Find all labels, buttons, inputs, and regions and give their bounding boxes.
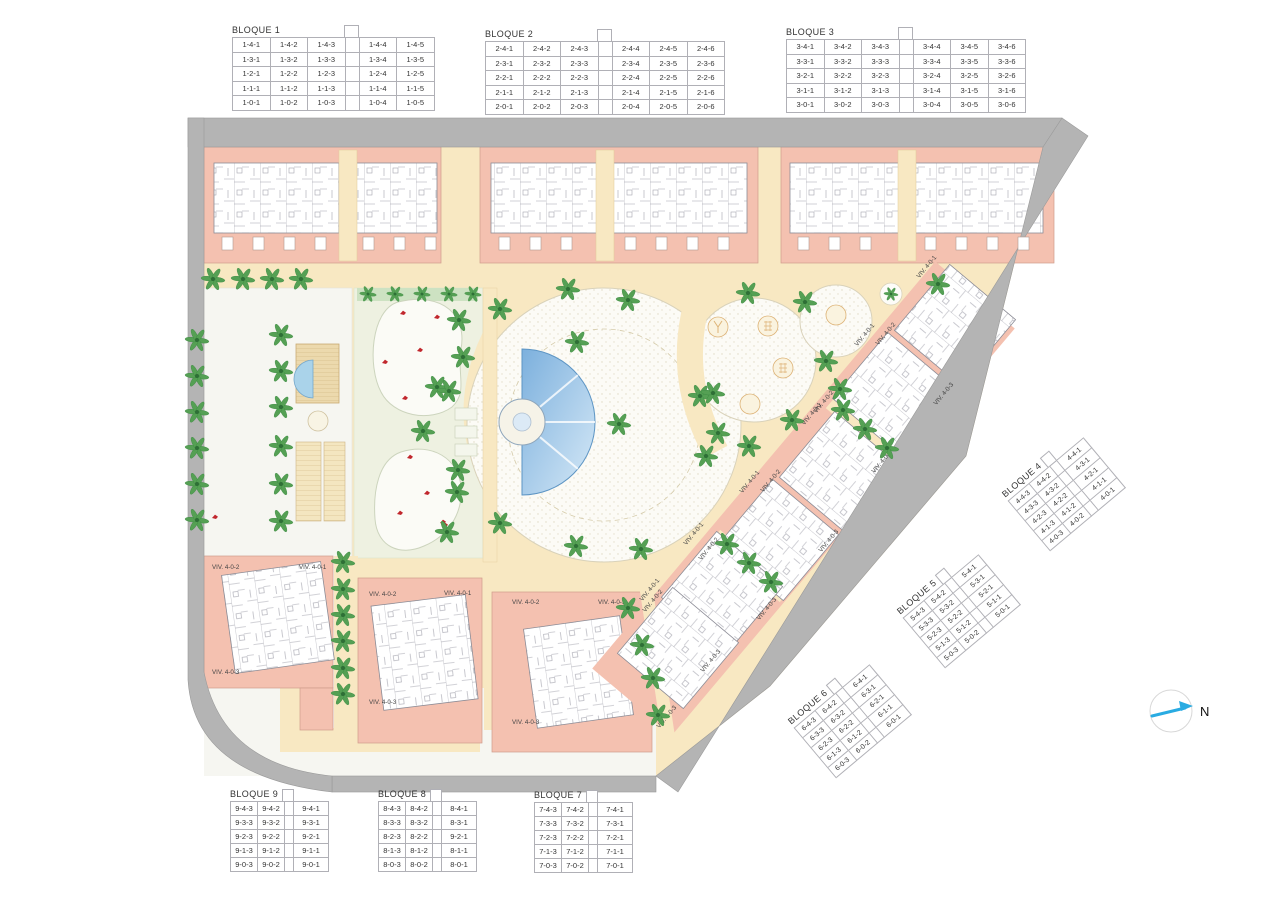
viv-label: VIV. 4-0-1 (444, 590, 472, 597)
unit-cell: 8-2-3 (379, 830, 406, 844)
unit-cell: 1-0-2 (271, 96, 309, 111)
terrace-unit (625, 237, 636, 250)
unit-cell: 7-2-2 (562, 831, 589, 845)
table-tab (344, 25, 359, 38)
unit-cell: 3-0-6 (989, 98, 1027, 113)
unit-cell: 3-4-3 (862, 40, 900, 55)
unit-cell: 2-2-1 (486, 71, 524, 86)
unit-cell: 7-3-3 (535, 817, 562, 831)
unit-cell: 1-2-5 (397, 67, 435, 82)
terrace-unit (718, 237, 729, 250)
terrace-unit (253, 237, 264, 250)
unit-cell: 3-2-5 (951, 69, 989, 84)
unit-cell: 2-2-4 (613, 71, 651, 86)
unit-cell: 9-1-3 (231, 844, 258, 858)
unit-cell: 3-4-5 (951, 40, 989, 55)
table-gap-cell (900, 55, 914, 70)
unit-cell: 3-0-5 (951, 98, 989, 113)
unit-cell: 3-0-4 (914, 98, 952, 113)
table-tab (597, 29, 612, 42)
unit-cell: 1-3-3 (308, 53, 346, 68)
terrace-unit (363, 237, 374, 250)
unit-cell: 9-4-3 (231, 802, 258, 816)
unit-cell: 7-3-2 (562, 817, 589, 831)
unit-cell: 9-4-1 (294, 802, 329, 816)
viv-label: VIV. 4-0-2 (212, 564, 240, 571)
unit-cell: 3-2-1 (787, 69, 825, 84)
unit-cell: 3-4-2 (825, 40, 863, 55)
terrace-unit (956, 237, 967, 250)
sunbed (455, 444, 477, 456)
unit-cell: 8-1-1 (442, 844, 477, 858)
unit-cell: 1-3-5 (397, 53, 435, 68)
unit-cell: 2-3-6 (688, 57, 726, 72)
terrace-unit (656, 237, 667, 250)
terrace-unit (284, 237, 295, 250)
unit-cell: 1-1-1 (233, 82, 271, 97)
unit-cell: 7-2-3 (535, 831, 562, 845)
unit-cell: 1-0-1 (233, 96, 271, 111)
table-title-bloque-7: BLOQUE 7 (534, 789, 633, 802)
unit-cell: 1-4-4 (360, 38, 398, 53)
terrace-unit (561, 237, 572, 250)
unit-table-bloque-7: BLOQUE 7 7-4-37-4-27-4-17-3-37-3-27-3-17… (534, 789, 633, 873)
table-gap-cell (433, 816, 442, 830)
terrace-unit (425, 237, 436, 250)
unit-cell: 8-3-3 (379, 816, 406, 830)
table-gap-cell (285, 830, 294, 844)
unit-cell: 3-3-4 (914, 55, 952, 70)
unit-cell: 1-4-2 (271, 38, 309, 53)
viv-label: VIV. 4-0-1 (598, 599, 626, 606)
north-label: N (1200, 704, 1209, 719)
unit-grid-bloque-2: 2-4-12-4-22-4-32-4-42-4-52-4-62-3-12-3-2… (485, 41, 725, 115)
table-gap-cell (589, 803, 598, 817)
table-title-bloque-1: BLOQUE 1 (232, 24, 435, 37)
unit-cell: 3-3-5 (951, 55, 989, 70)
unit-cell: 7-4-1 (598, 803, 633, 817)
unit-cell: 2-3-2 (524, 57, 562, 72)
table-gap-cell (599, 100, 613, 115)
unit-cell: 1-2-4 (360, 67, 398, 82)
unit-cell: 1-4-5 (397, 38, 435, 53)
unit-cell: 7-3-1 (598, 817, 633, 831)
unit-cell: 9-3-2 (258, 816, 285, 830)
unit-cell: 2-1-2 (524, 86, 562, 101)
unit-cell: 1-2-1 (233, 67, 271, 82)
unit-grid-bloque-9: 9-4-39-4-29-4-19-3-39-3-29-3-19-2-39-2-2… (230, 801, 329, 872)
unit-cell: 9-3-3 (231, 816, 258, 830)
unit-cell: 9-0-3 (231, 858, 258, 872)
unit-cell: 8-0-2 (406, 858, 433, 872)
unit-cell: 2-2-3 (561, 71, 599, 86)
unit-cell: 3-1-3 (862, 84, 900, 99)
unit-cell: 1-2-2 (271, 67, 309, 82)
unit-table-bloque-2: BLOQUE 2 2-4-12-4-22-4-32-4-42-4-52-4-62… (485, 28, 725, 115)
unit-cell: 2-0-5 (650, 100, 688, 115)
unit-cell: 9-4-2 (258, 802, 285, 816)
unit-cell: 3-2-6 (989, 69, 1027, 84)
unit-cell: 2-0-1 (486, 100, 524, 115)
sunbed (455, 426, 477, 438)
unit-cell: 8-4-1 (442, 802, 477, 816)
unit-cell: 7-0-2 (562, 859, 589, 873)
unit-cell: 1-3-2 (271, 53, 309, 68)
unit-cell: 3-3-6 (989, 55, 1027, 70)
table-gap-cell (599, 71, 613, 86)
unit-cell: 1-1-3 (308, 82, 346, 97)
unit-cell: 1-1-2 (271, 82, 309, 97)
table-gap-cell (433, 858, 442, 872)
unit-cell: 2-4-6 (688, 42, 726, 57)
unit-cell: 1-0-4 (360, 96, 398, 111)
viv-label: VIV. 4-0-3 (512, 719, 540, 726)
unit-cell: 2-1-5 (650, 86, 688, 101)
unit-cell: 9-1-1 (294, 844, 329, 858)
unit-cell: 2-1-6 (688, 86, 726, 101)
table-gap-cell (433, 802, 442, 816)
viv-label: VIV. 4-0-3 (212, 669, 240, 676)
unit-cell: 2-0-6 (688, 100, 726, 115)
unit-cell: 7-0-1 (598, 859, 633, 873)
unit-cell: 9-3-1 (294, 816, 329, 830)
unit-cell: 9-2-2 (258, 830, 285, 844)
unit-cell: 1-1-5 (397, 82, 435, 97)
unit-cell: 7-4-3 (535, 803, 562, 817)
unit-cell: 9-0-2 (258, 858, 285, 872)
unit-cell: 2-4-3 (561, 42, 599, 57)
table-gap-cell (346, 53, 360, 68)
unit-cell: 2-1-1 (486, 86, 524, 101)
table-gap-cell (900, 69, 914, 84)
terrace-unit (222, 237, 233, 250)
unit-grid-bloque-1: 1-4-11-4-21-4-31-4-41-4-51-3-11-3-21-3-3… (232, 37, 435, 111)
table-tab (282, 789, 294, 802)
site-plan-page: VIV. 4-0-2VIV. 4-0-1VIV. 4-0-3VIV. 4-0-2… (0, 0, 1280, 904)
terrace-unit (530, 237, 541, 250)
unit-cell: 3-2-4 (914, 69, 952, 84)
sunbed (455, 408, 477, 420)
unit-table-bloque-1: BLOQUE 1 1-4-11-4-21-4-31-4-41-4-51-3-11… (232, 24, 435, 111)
table-title-bloque-8: BLOQUE 8 (378, 788, 477, 801)
unit-cell: 1-4-3 (308, 38, 346, 53)
table-gap-cell (346, 38, 360, 53)
unit-cell: 1-1-4 (360, 82, 398, 97)
unit-cell: 3-4-4 (914, 40, 952, 55)
table-gap-cell (900, 98, 914, 113)
unit-cell: 7-2-1 (598, 831, 633, 845)
unit-cell: 3-4-6 (989, 40, 1027, 55)
unit-cell: 3-3-1 (787, 55, 825, 70)
table-gap-cell (599, 86, 613, 101)
unit-table-bloque-9: BLOQUE 9 9-4-39-4-29-4-19-3-39-3-29-3-19… (230, 788, 329, 872)
unit-cell: 7-1-1 (598, 845, 633, 859)
terrace-unit (925, 237, 936, 250)
unit-cell: 9-2-1 (294, 830, 329, 844)
unit-cell: 3-1-2 (825, 84, 863, 99)
table-gap-cell (599, 42, 613, 57)
unit-cell: 2-4-4 (613, 42, 651, 57)
unit-table-bloque-8: BLOQUE 8 8-4-38-4-28-4-18-3-38-3-28-3-18… (378, 788, 477, 872)
sunbeds-group (455, 408, 477, 456)
unit-grid-bloque-3: 3-4-13-4-23-4-33-4-43-4-53-4-63-3-13-3-2… (786, 39, 1026, 113)
unit-cell: 3-0-2 (825, 98, 863, 113)
table-gap-cell (900, 84, 914, 99)
terrace-unit (798, 237, 809, 250)
top-road (188, 118, 1062, 147)
unit-cell: 7-0-3 (535, 859, 562, 873)
table-gap-cell (589, 831, 598, 845)
unit-cell: 3-2-3 (862, 69, 900, 84)
unit-cell: 2-2-6 (688, 71, 726, 86)
unit-cell: 9-2-1 (442, 830, 477, 844)
table-title-bloque-9: BLOQUE 9 (230, 788, 329, 801)
unit-grid-bloque-8: 8-4-38-4-28-4-18-3-38-3-28-3-18-2-38-2-2… (378, 801, 477, 872)
unit-cell: 2-0-3 (561, 100, 599, 115)
unit-cell: 9-2-3 (231, 830, 258, 844)
unit-cell: 2-1-3 (561, 86, 599, 101)
unit-cell: 2-1-4 (613, 86, 651, 101)
unit-cell: 3-1-5 (951, 84, 989, 99)
table-gap-cell (433, 844, 442, 858)
unit-cell: 2-4-5 (650, 42, 688, 57)
unit-cell: 8-3-1 (442, 816, 477, 830)
unit-cell: 8-1-2 (406, 844, 433, 858)
table-gap-cell (285, 844, 294, 858)
unit-cell: 8-4-2 (406, 802, 433, 816)
unit-cell: 7-1-2 (562, 845, 589, 859)
table-gap-cell (285, 802, 294, 816)
unit-cell: 3-1-4 (914, 84, 952, 99)
table-tab (898, 27, 913, 40)
table-gap-cell (285, 858, 294, 872)
unit-cell: 2-3-5 (650, 57, 688, 72)
table-tab (586, 790, 598, 803)
unit-cell: 1-3-4 (360, 53, 398, 68)
unit-table-bloque-3: BLOQUE 3 3-4-13-4-23-4-33-4-43-4-53-4-63… (786, 26, 1026, 113)
unit-cell: 2-3-4 (613, 57, 651, 72)
unit-cell: 7-4-2 (562, 803, 589, 817)
viv-label: VIV. 4-0-1 (299, 564, 327, 571)
unit-cell: 3-2-2 (825, 69, 863, 84)
unit-cell: 8-2-2 (406, 830, 433, 844)
unit-cell: 9-1-2 (258, 844, 285, 858)
table-gap-cell (285, 816, 294, 830)
terrace-unit (987, 237, 998, 250)
unit-cell: 2-4-2 (524, 42, 562, 57)
terrace-unit (499, 237, 510, 250)
unit-cell: 8-1-3 (379, 844, 406, 858)
unit-cell: 2-4-1 (486, 42, 524, 57)
unit-cell: 3-3-2 (825, 55, 863, 70)
terrace-unit (829, 237, 840, 250)
table-tab (430, 789, 442, 802)
viv-label: VIV. 4-0-3 (369, 699, 397, 706)
table-gap-cell (346, 67, 360, 82)
table-gap-cell (900, 40, 914, 55)
unit-cell: 8-0-1 (442, 858, 477, 872)
unit-cell: 8-4-3 (379, 802, 406, 816)
terrace-unit (687, 237, 698, 250)
viv-label: VIV. 4-0-2 (369, 591, 397, 598)
table-gap-cell (346, 96, 360, 111)
unit-cell: 3-3-3 (862, 55, 900, 70)
unit-cell: 2-0-2 (524, 100, 562, 115)
terrace-unit (860, 237, 871, 250)
table-gap-cell (599, 57, 613, 72)
unit-cell: 1-0-3 (308, 96, 346, 111)
terrace-unit (1018, 237, 1029, 250)
terrace-unit (394, 237, 405, 250)
unit-cell: 2-3-3 (561, 57, 599, 72)
table-gap-cell (433, 830, 442, 844)
viv-label: VIV. 4-0-2 (512, 599, 540, 606)
unit-cell: 2-2-2 (524, 71, 562, 86)
unit-cell: 3-1-6 (989, 84, 1027, 99)
unit-cell: 1-2-3 (308, 67, 346, 82)
unit-cell: 3-1-1 (787, 84, 825, 99)
unit-cell: 1-4-1 (233, 38, 271, 53)
table-gap-cell (589, 817, 598, 831)
unit-cell: 1-3-1 (233, 53, 271, 68)
north-compass: N (1150, 690, 1209, 732)
unit-cell: 2-0-4 (613, 100, 651, 115)
playground-icon (826, 305, 846, 325)
unit-cell: 2-3-1 (486, 57, 524, 72)
table-gap-cell (589, 845, 598, 859)
unit-cell: 3-0-3 (862, 98, 900, 113)
playground-icon (740, 394, 760, 414)
terrace-unit (315, 237, 326, 250)
unit-cell: 9-0-1 (294, 858, 329, 872)
unit-cell: 2-2-5 (650, 71, 688, 86)
unit-cell: 3-0-1 (787, 98, 825, 113)
table-gap-cell (346, 82, 360, 97)
unit-cell: 3-4-1 (787, 40, 825, 55)
unit-cell: 8-3-2 (406, 816, 433, 830)
unit-cell: 1-0-5 (397, 96, 435, 111)
unit-grid-bloque-7: 7-4-37-4-27-4-17-3-37-3-27-3-17-2-37-2-2… (534, 802, 633, 873)
unit-cell: 7-1-3 (535, 845, 562, 859)
table-gap-cell (589, 859, 598, 873)
unit-cell: 8-0-3 (379, 858, 406, 872)
